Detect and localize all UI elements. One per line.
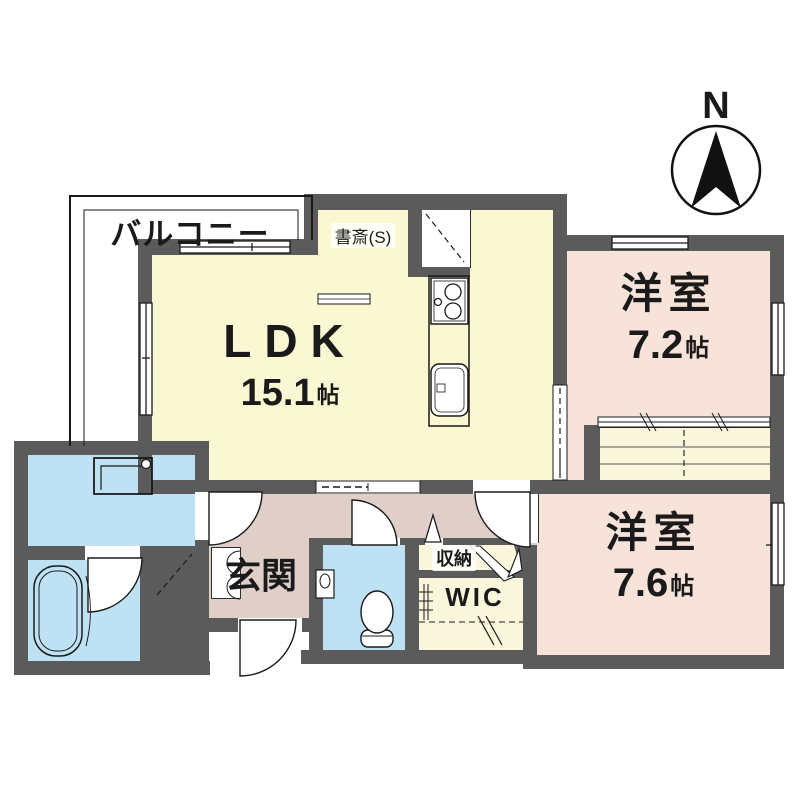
wall	[140, 546, 209, 661]
doorway	[352, 538, 400, 545]
doorway	[195, 492, 209, 540]
study-label: 書斎(S)	[314, 222, 412, 248]
ldk-size: 15.1帖	[180, 371, 400, 415]
doorway	[85, 546, 140, 560]
compass-icon	[672, 126, 760, 214]
fridge-space	[422, 210, 470, 267]
balcony-label: バルコニー	[70, 212, 310, 250]
doorway	[473, 480, 530, 494]
wall	[567, 235, 784, 251]
wall	[553, 194, 567, 385]
wall	[138, 239, 152, 494]
compass-label: N	[692, 86, 740, 126]
bathroom	[28, 560, 140, 661]
wall	[14, 441, 28, 675]
wall	[523, 655, 784, 669]
doorway	[425, 538, 443, 545]
wall	[301, 650, 537, 664]
wall	[408, 267, 470, 277]
entrance-label: 玄関	[209, 552, 313, 594]
ldk-label: LDK	[180, 315, 400, 367]
wall	[584, 425, 600, 480]
wall	[14, 661, 210, 675]
washroom	[28, 455, 195, 546]
wall	[309, 538, 352, 545]
western2-label: 洋室	[537, 505, 770, 553]
western1-size: 7.2帖	[567, 322, 770, 368]
toilet-room	[323, 545, 405, 650]
wall	[405, 538, 419, 664]
floor-plan: バルコニー N 書斎(S) LDK 15.1帖 洋室 7.2帖 洋室 7.6帖 …	[0, 0, 800, 800]
wall	[138, 480, 316, 494]
wall	[304, 194, 567, 210]
doorway	[238, 618, 302, 632]
wic-label: WIC	[427, 582, 523, 612]
wall	[14, 441, 209, 455]
wall	[443, 538, 523, 545]
storage-label: 収納	[419, 545, 489, 570]
wall	[28, 546, 85, 560]
wall	[419, 570, 523, 578]
wall	[530, 480, 784, 494]
western1-label: 洋室	[567, 266, 770, 314]
closet-7-2	[600, 428, 770, 480]
wall	[770, 235, 784, 669]
western2-size: 7.6帖	[537, 560, 770, 606]
wall	[420, 480, 473, 494]
wall	[209, 618, 238, 632]
